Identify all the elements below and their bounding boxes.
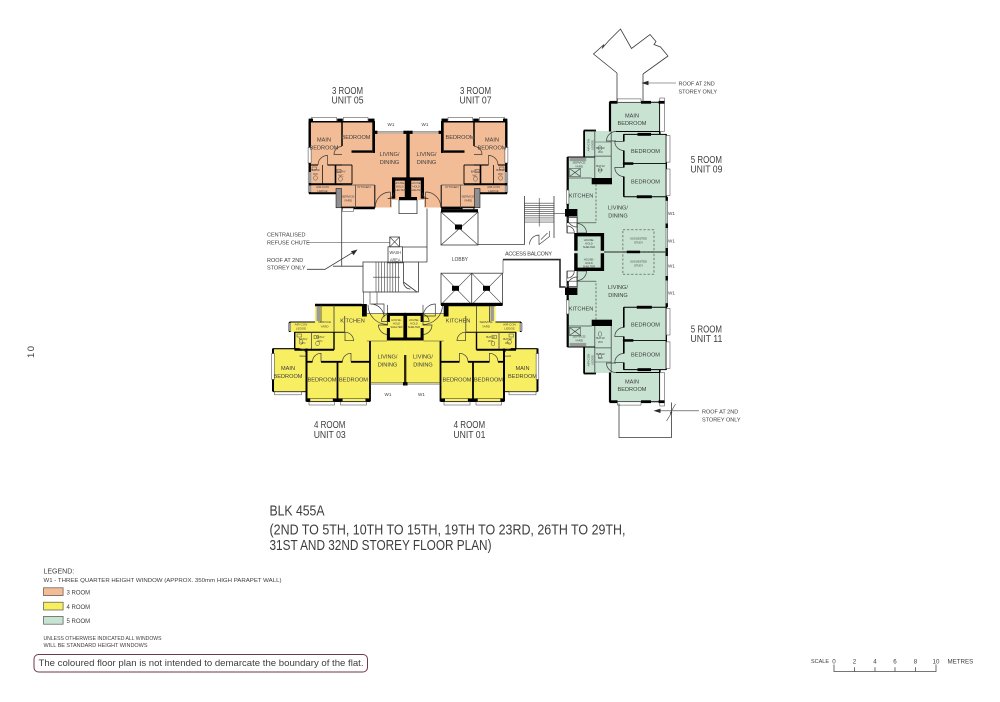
svg-text:STUDY: STUDY (634, 241, 643, 245)
svg-text:The coloured floor plan is not: The coloured floor plan is not intended … (39, 658, 364, 669)
svg-text:ACCESS BALCONY: ACCESS BALCONY (505, 252, 552, 258)
svg-text:DINING: DINING (608, 214, 628, 220)
svg-text:BEDROOM: BEDROOM (310, 146, 339, 152)
svg-text:REFUSE CHUTE: REFUSE CHUTE (267, 241, 310, 247)
svg-text:HOLD: HOLD (585, 261, 593, 265)
svg-text:W1: W1 (422, 122, 429, 127)
svg-text:HOLD: HOLD (585, 242, 593, 246)
svg-text:HOLD: HOLD (410, 322, 418, 326)
svg-text:HOUSE-: HOUSE- (584, 238, 595, 242)
svg-text:SHELTER: SHELTER (390, 325, 402, 329)
svg-text:SUGGESTED: SUGGESTED (630, 260, 647, 264)
svg-text:BEDROOM: BEDROOM (631, 149, 660, 155)
svg-text:KITCHEN: KITCHEN (569, 307, 594, 313)
svg-text:UNIT 07: UNIT 07 (460, 96, 492, 107)
svg-text:W1 - THREE QUARTER HEIGHT: W1 - THREE QUARTER HEIGHT WINDOW (APPROX… (44, 578, 282, 584)
svg-text:STOREY ONLY: STOREY ONLY (267, 265, 306, 271)
svg-text:WC: WC (339, 174, 345, 178)
svg-text:WC: WC (473, 174, 479, 178)
svg-text:WC: WC (488, 339, 494, 343)
svg-text:SHELTER: SHELTER (583, 245, 595, 249)
svg-text:WC: WC (598, 356, 604, 360)
svg-text:ROOF AT 2ND: ROOF AT 2ND (702, 410, 738, 416)
svg-text:LIVING/: LIVING/ (608, 285, 628, 291)
svg-text:BEDROOM: BEDROOM (308, 378, 337, 384)
svg-text:WILL BE STANDARD HEIGHT WI: WILL BE STANDARD HEIGHT WINDOWS (44, 643, 148, 649)
svg-text:HOUSE-: HOUSE- (584, 258, 595, 262)
svg-text:MAIN: MAIN (625, 380, 639, 386)
svg-text:LIVING/: LIVING/ (380, 152, 400, 158)
svg-text:WC: WC (598, 340, 604, 344)
svg-text:UNIT 01: UNIT 01 (453, 430, 485, 441)
svg-text:4 ROOM: 4 ROOM (67, 605, 91, 611)
svg-text:UNIT 03: UNIT 03 (314, 430, 346, 441)
svg-text:HOUSE-: HOUSE- (395, 181, 406, 185)
svg-text:5 ROOM: 5 ROOM (67, 619, 91, 625)
svg-text:MAIN: MAIN (317, 138, 331, 144)
svg-text:KITCHEN: KITCHEN (446, 319, 471, 325)
svg-text:HOLD: HOLD (412, 185, 420, 189)
svg-text:ROOF AT 2ND: ROOF AT 2ND (679, 82, 715, 88)
svg-text:SHELTER: SHELTER (410, 188, 422, 192)
svg-text:UNIT 05: UNIT 05 (332, 96, 364, 107)
svg-text:STOREY ONLY: STOREY ONLY (702, 417, 741, 423)
svg-text:W1: W1 (385, 392, 392, 397)
svg-text:MAIN: MAIN (625, 114, 639, 120)
svg-text:LEDGE: LEDGE (591, 355, 595, 365)
svg-text:BEDROOM: BEDROOM (618, 121, 647, 127)
svg-text:AREA: AREA (390, 258, 401, 263)
svg-text:UNLESS OTHERWISE INDICATED: UNLESS OTHERWISE INDICATED ALL WINDOWS (44, 636, 162, 642)
svg-text:31ST AND 32ND STOREY FLOOR: 31ST AND 32ND STOREY FLOOR PLAN) (270, 538, 492, 554)
svg-text:KITCHEN: KITCHEN (357, 185, 370, 189)
svg-text:W1: W1 (668, 211, 675, 216)
svg-text:BEDROOM: BEDROOM (342, 135, 371, 141)
svg-text:10: 10 (933, 659, 940, 666)
svg-text:YARD: YARD (575, 165, 584, 169)
svg-text:W1: W1 (418, 392, 425, 397)
svg-text:WC: WC (318, 339, 324, 343)
svg-text:MAIN: MAIN (516, 366, 530, 372)
svg-text:DINING: DINING (608, 293, 628, 299)
svg-text:BEDROOM: BEDROOM (274, 374, 303, 380)
svg-text:STUDY: STUDY (634, 264, 643, 268)
svg-text:BEDROOM: BEDROOM (443, 378, 472, 384)
svg-text:KITCHEN: KITCHEN (340, 319, 365, 325)
svg-text:MAIN: MAIN (281, 366, 295, 372)
svg-text:LEDGE: LEDGE (488, 189, 498, 193)
svg-text:WC: WC (598, 168, 604, 172)
svg-text:UNIT 09: UNIT 09 (690, 164, 722, 175)
svg-text:W1: W1 (668, 291, 675, 296)
svg-text:KITCHEN: KITCHEN (445, 185, 458, 189)
svg-text:6: 6 (893, 659, 897, 666)
svg-text:SHELTER: SHELTER (583, 265, 595, 269)
svg-text:SERVICE: SERVICE (479, 320, 492, 324)
svg-text:2: 2 (853, 659, 857, 666)
svg-text:CENTRALISED: CENTRALISED (267, 233, 306, 239)
svg-text:LIVING/: LIVING/ (417, 152, 437, 158)
svg-text:DINING: DINING (417, 160, 437, 166)
svg-text:UNIT 11: UNIT 11 (690, 334, 722, 345)
svg-text:HOLD: HOLD (396, 185, 404, 189)
svg-text:LEDGE: LEDGE (317, 189, 327, 193)
svg-text:LOBBY: LOBBY (452, 257, 468, 263)
svg-text:BEDROOM: BEDROOM (339, 378, 368, 384)
svg-text:DINING: DINING (413, 363, 433, 369)
svg-text:LIVING/: LIVING/ (378, 355, 398, 361)
svg-text:8: 8 (914, 659, 918, 666)
svg-text:BLK 455A: BLK 455A (270, 504, 325, 520)
svg-text:YARD: YARD (464, 199, 473, 203)
svg-text:WC: WC (505, 341, 511, 345)
svg-text:BEDROOM: BEDROOM (631, 323, 660, 329)
svg-text:YARD: YARD (344, 199, 353, 203)
svg-text:0: 0 (832, 659, 836, 666)
svg-text:LIVING/: LIVING/ (608, 206, 628, 212)
svg-text:KITCHEN: KITCHEN (569, 194, 594, 200)
svg-text:BEDROOM: BEDROOM (446, 135, 475, 141)
svg-text:W1: W1 (668, 264, 675, 269)
svg-text:10: 10 (26, 344, 37, 358)
svg-text:BEDROOM: BEDROOM (631, 353, 660, 359)
svg-text:WC: WC (301, 341, 307, 345)
svg-text:LIVING/: LIVING/ (413, 355, 433, 361)
svg-text:YARD: YARD (482, 325, 491, 329)
svg-text:W1: W1 (388, 122, 395, 127)
svg-text:SUGGESTED: SUGGESTED (630, 237, 647, 241)
svg-text:BEDROOM: BEDROOM (618, 387, 647, 393)
svg-text:LEDGE: LEDGE (504, 327, 514, 331)
svg-text:MAIN: MAIN (485, 138, 499, 144)
svg-text:HOUSE-: HOUSE- (411, 181, 422, 185)
svg-text:WC: WC (598, 150, 604, 154)
svg-text:ROOF AT 2ND: ROOF AT 2ND (267, 258, 303, 264)
svg-text:3 ROOM: 3 ROOM (67, 591, 91, 597)
svg-text:YARD: YARD (320, 325, 329, 329)
svg-text:BEDROOM: BEDROOM (478, 146, 507, 152)
svg-text:BEDROOM: BEDROOM (508, 374, 537, 380)
svg-text:WASH: WASH (389, 250, 401, 255)
svg-text:(2ND TO 5TH, 10TH TO 15TH: (2ND TO 5TH, 10TH TO 15TH, 19TH TO 23RD,… (270, 523, 626, 539)
svg-text:WC: WC (498, 172, 504, 176)
svg-text:W1: W1 (668, 239, 675, 244)
svg-text:YARD: YARD (575, 339, 584, 343)
svg-text:WC: WC (313, 172, 319, 176)
svg-text:METRES: METRES (948, 659, 974, 666)
svg-text:DINING: DINING (378, 363, 398, 369)
svg-text:4: 4 (873, 659, 877, 666)
svg-text:LEGEND:: LEGEND: (44, 569, 75, 576)
svg-text:LEDGE: LEDGE (591, 140, 595, 150)
svg-text:HOLD: HOLD (393, 322, 401, 326)
svg-text:HOUSE-: HOUSE- (409, 318, 420, 322)
svg-text:LEDGE: LEDGE (296, 327, 306, 331)
svg-text:SCALE: SCALE (811, 659, 829, 665)
svg-text:STOREY ONLY: STOREY ONLY (679, 89, 718, 95)
svg-text:HOUSE-: HOUSE- (391, 318, 402, 322)
svg-text:SHELTER: SHELTER (408, 325, 420, 329)
svg-text:DINING: DINING (380, 160, 400, 166)
svg-text:SERVICE: SERVICE (318, 320, 331, 324)
svg-text:BEDROOM: BEDROOM (474, 378, 503, 384)
svg-text:BEDROOM: BEDROOM (631, 180, 660, 186)
svg-text:SHELTER: SHELTER (394, 188, 406, 192)
